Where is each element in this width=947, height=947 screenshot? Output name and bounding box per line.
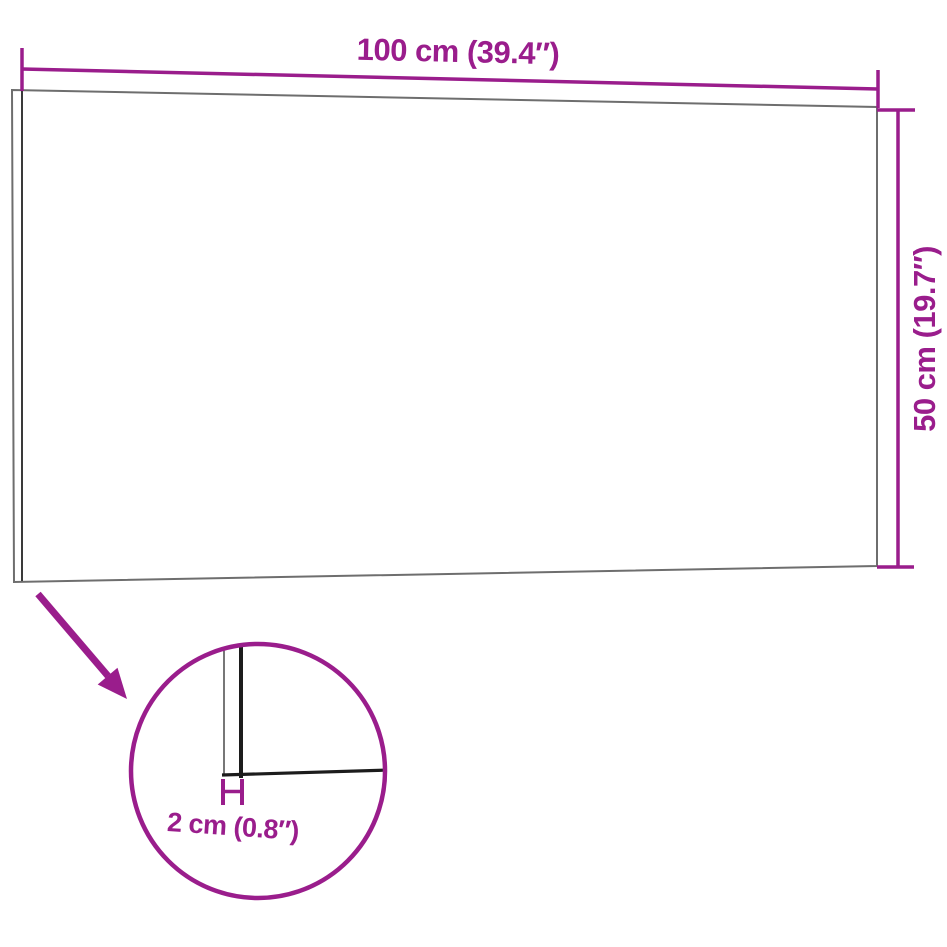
diagram-canvas: [0, 0, 947, 947]
height-dimension-label: 50 cm (19.7″): [907, 246, 943, 432]
width-dimension-line: [22, 69, 878, 89]
product-dimension-diagram: 100 cm (39.4″) 50 cm (19.7″) 2 cm (0.8″): [0, 0, 947, 947]
detail-bottom-edge-line: [222, 770, 390, 775]
magnifier-content: [222, 640, 390, 778]
width-dimension-label: 100 cm (39.4″): [356, 32, 559, 73]
zoom-arrow-line: [38, 594, 108, 676]
panel-face: [12, 90, 877, 582]
